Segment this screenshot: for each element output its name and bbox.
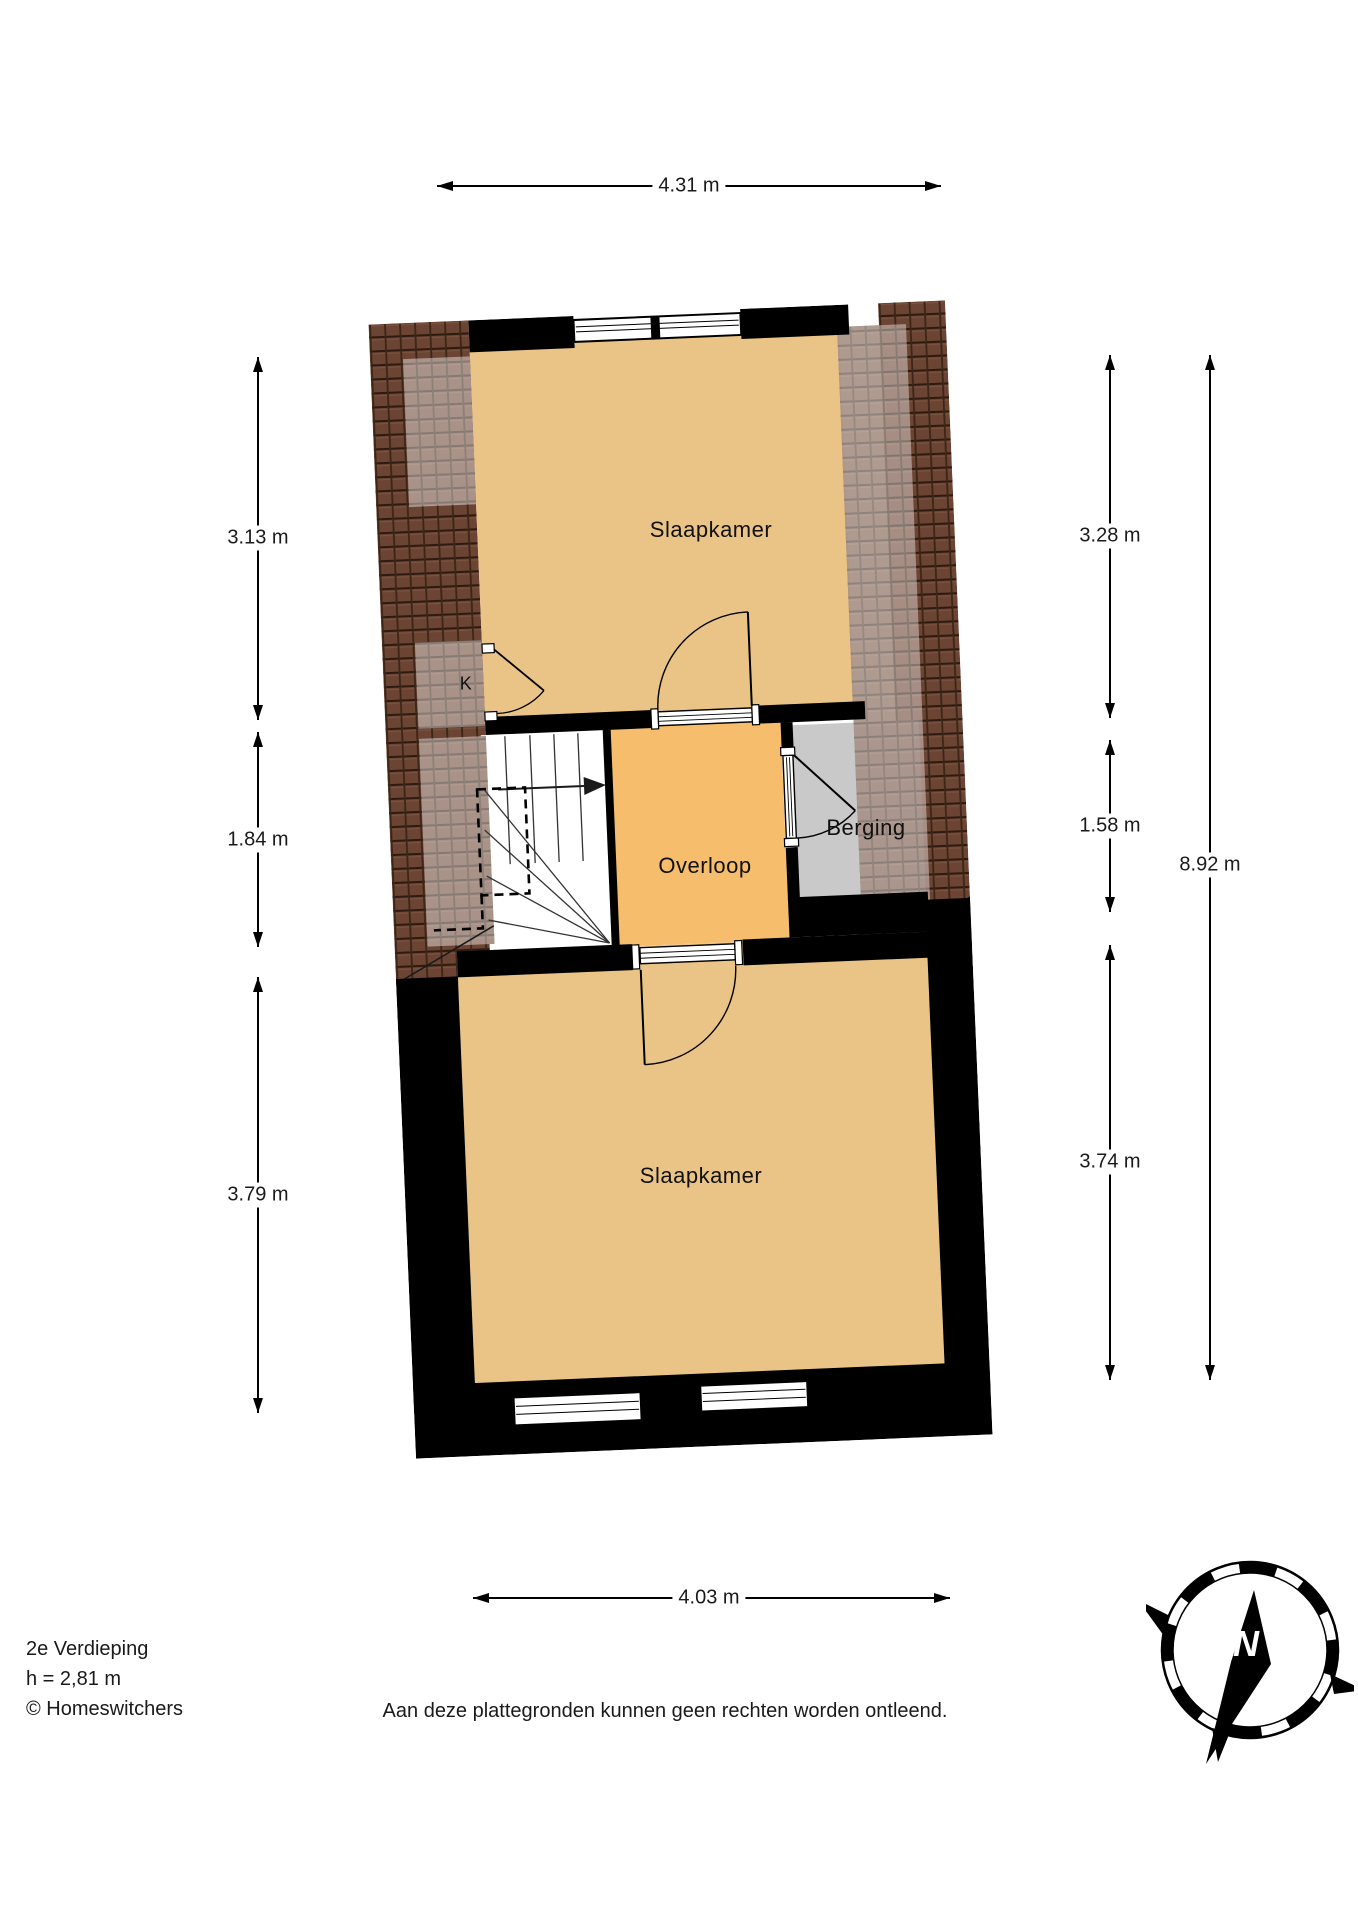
floor-title: 2e Verdieping: [26, 1634, 183, 1664]
floorplan-page: { "title_block": { "floor": "2e Verdiepi…: [0, 0, 1358, 1920]
closet-k-area: [415, 640, 486, 729]
dimension-top-label: 4.31 m: [652, 174, 725, 199]
label-bedroom-top: Slaapkamer: [650, 517, 772, 543]
compass-spike-east: [1330, 1674, 1354, 1694]
label-storage: Berging: [826, 815, 905, 841]
dimension-left-2-label: 1.84 m: [221, 828, 294, 853]
compass-rose: N: [1146, 1546, 1354, 1776]
window-bottom-left: [514, 1392, 642, 1425]
dimension-right-2-label: 1.58 m: [1073, 814, 1146, 839]
label-landing: Overloop: [658, 853, 751, 879]
wall-top-right: [740, 304, 849, 338]
room-bedroom-bottom: [457, 934, 945, 1389]
dimension-left-1-label: 3.13 m: [221, 526, 294, 551]
title-block: 2e Verdieping h = 2,81 m © Homeswitchers: [26, 1634, 183, 1724]
compass-north-letter: N: [1233, 1623, 1260, 1664]
copyright: © Homeswitchers: [26, 1694, 183, 1724]
building-plan: [368, 300, 992, 1458]
dimension-overall-right-label: 8.92 m: [1173, 853, 1246, 878]
floorplan-drawing: [368, 300, 992, 1458]
room-landing: [607, 708, 790, 947]
dimension-right-1-label: 3.28 m: [1073, 524, 1146, 549]
dimension-right-3-label: 3.74 m: [1073, 1150, 1146, 1175]
disclaimer-text: Aan deze plattegronden kunnen geen recht…: [330, 1700, 1000, 1723]
dimension-left-3-label: 3.79 m: [221, 1183, 294, 1208]
label-closet-k: K: [460, 674, 473, 695]
wall-storage-left-bottom: [786, 847, 800, 901]
ceiling-height: h = 2,81 m: [26, 1664, 183, 1694]
wall-storage-bottom: [788, 892, 930, 938]
window-bottom-right: [700, 1381, 808, 1411]
dimension-bottom-label: 4.03 m: [672, 1586, 745, 1611]
label-bedroom-bottom: Slaapkamer: [640, 1163, 762, 1189]
wall-top-left: [468, 316, 574, 352]
stairs-area: [481, 730, 612, 952]
